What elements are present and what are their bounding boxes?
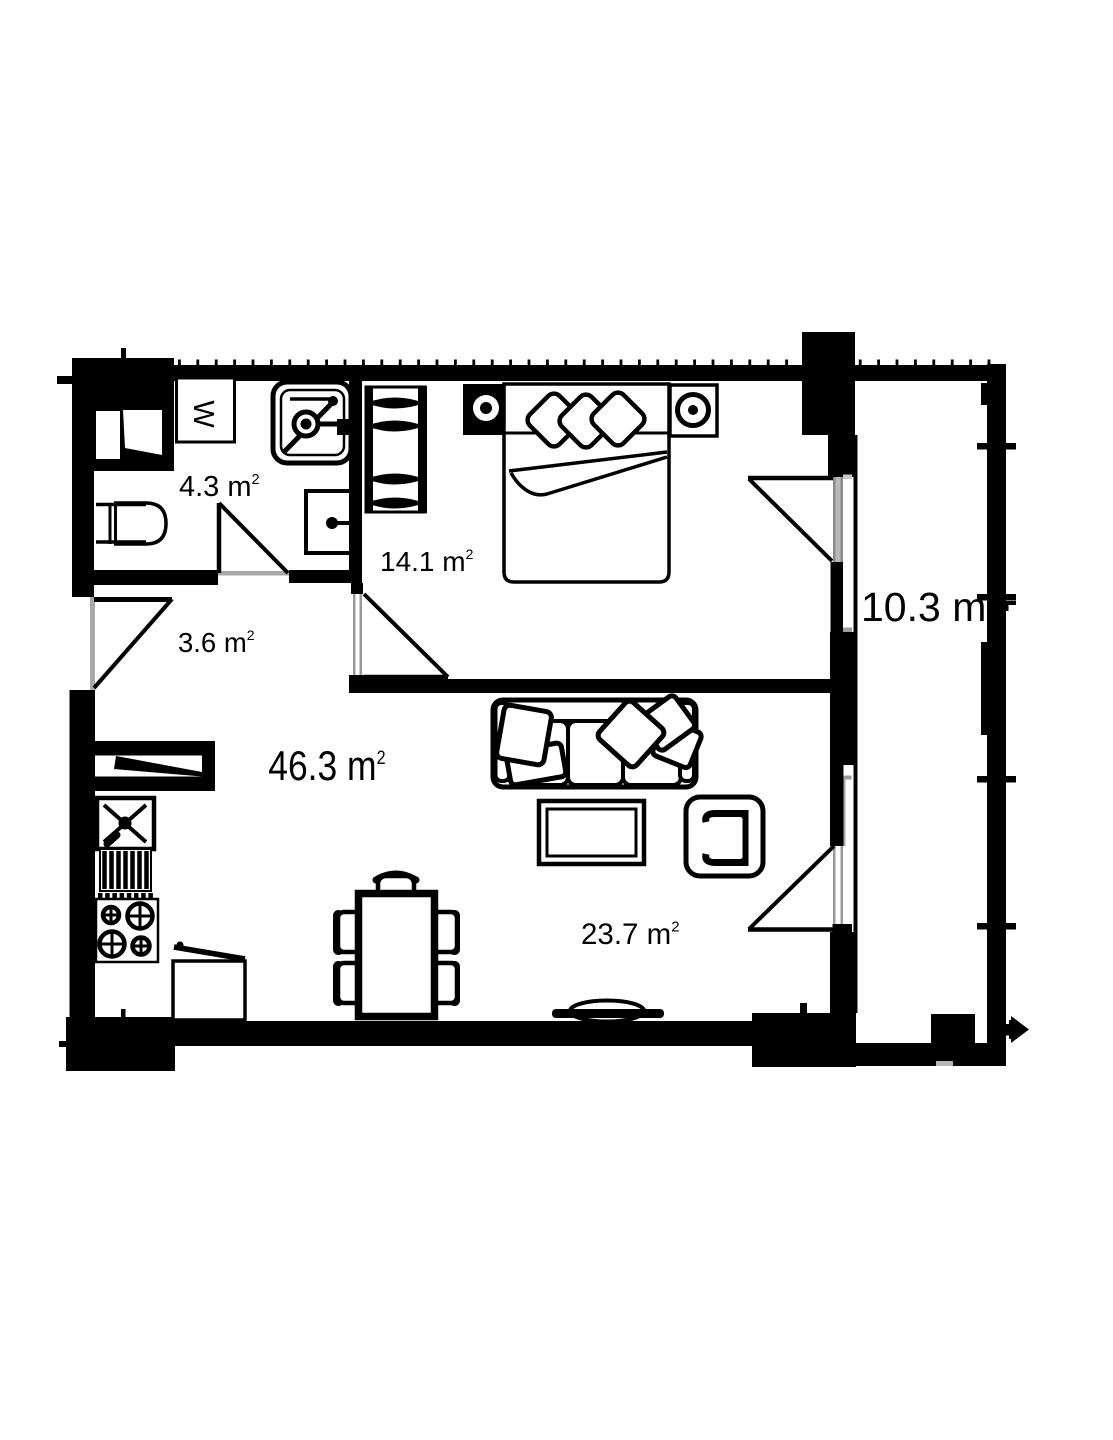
svg-text:10.3 m2: 10.3 m2 [861,584,997,630]
svg-text:3.6 m2: 3.6 m2 [178,627,255,658]
svg-text:4.3 m2: 4.3 m2 [179,471,260,503]
svg-text:46.3 m2: 46.3 m2 [268,743,385,789]
svg-text:23.7 m2: 23.7 m2 [581,918,680,951]
svg-text:14.1 m2: 14.1 m2 [380,546,474,577]
svg-text:W: W [187,400,219,428]
